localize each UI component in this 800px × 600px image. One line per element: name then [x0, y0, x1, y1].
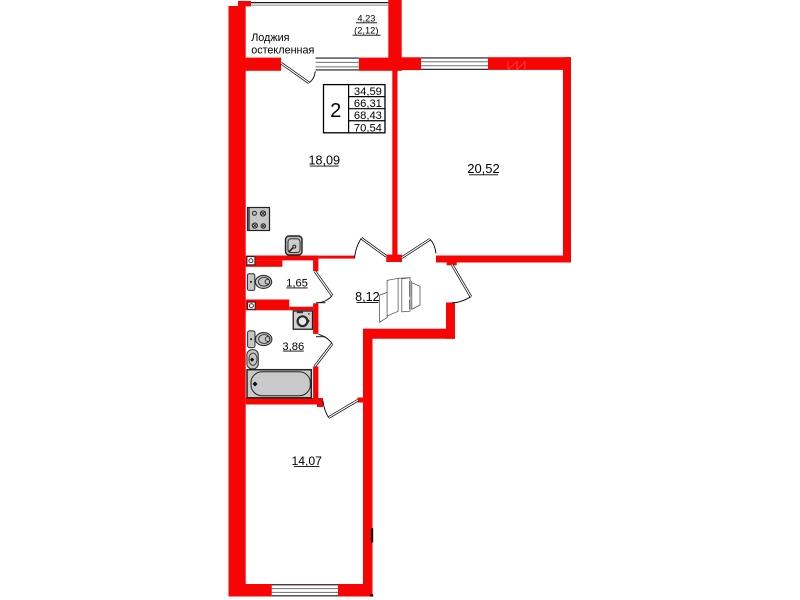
svg-text:2: 2	[330, 100, 341, 122]
svg-text:34,59: 34,59	[354, 86, 382, 98]
svg-text:4,23: 4,23	[357, 13, 375, 23]
svg-text:20,52: 20,52	[467, 161, 500, 176]
svg-text:8,12: 8,12	[355, 290, 380, 304]
svg-text:66,31: 66,31	[354, 98, 382, 110]
svg-text:(2,12): (2,12)	[354, 26, 378, 36]
svg-text:14,07: 14,07	[291, 454, 322, 468]
svg-text:Лоджия: Лоджия	[251, 32, 289, 44]
svg-text:18,09: 18,09	[308, 154, 340, 168]
svg-text:остекленная: остекленная	[251, 44, 314, 56]
svg-text:68,43: 68,43	[354, 110, 382, 122]
svg-text:70,54: 70,54	[354, 122, 382, 134]
